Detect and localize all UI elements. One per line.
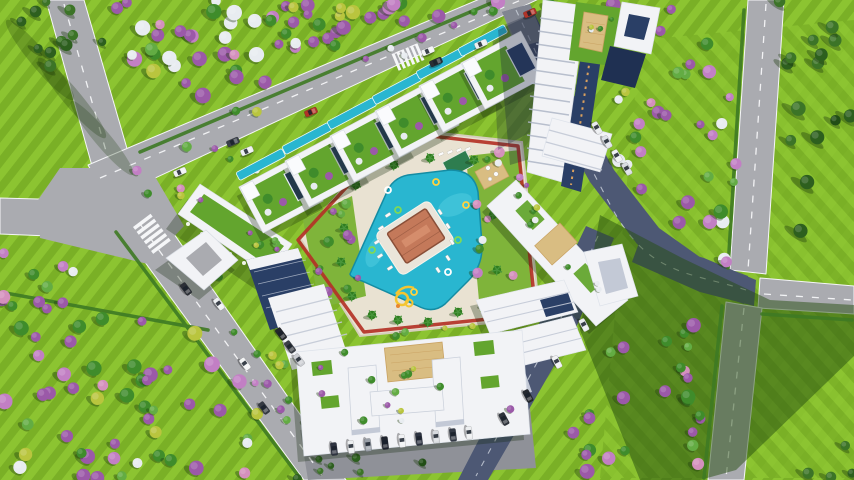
umbrella-icon <box>494 172 499 177</box>
aerial-render-canvas <box>0 0 854 480</box>
bottom-lowrise <box>290 330 530 462</box>
umbrella-icon <box>486 166 491 171</box>
umbrella-icon <box>488 177 492 181</box>
scene-svg <box>0 0 854 480</box>
